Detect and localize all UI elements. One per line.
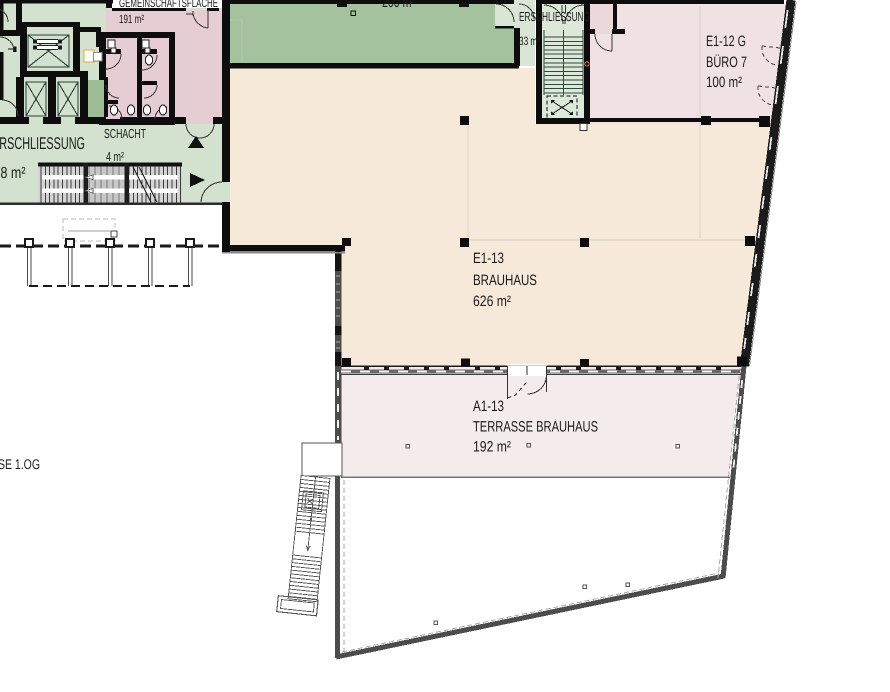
svg-text:A1-13: A1-13 <box>473 398 504 415</box>
svg-text:191 m²: 191 m² <box>119 12 144 26</box>
svg-text:SE 1.OG: SE 1.OG <box>0 456 40 472</box>
svg-text:GEMEINSCHAFTSFLÄCHE: GEMEINSCHAFTSFLÄCHE <box>119 0 218 10</box>
svg-text:626 m²: 626 m² <box>473 293 511 310</box>
svg-text:192 m²: 192 m² <box>473 439 511 456</box>
svg-text:8 m²: 8 m² <box>1 165 27 182</box>
svg-text:ERSCHLIESSUNG: ERSCHLIESSUNG <box>519 9 590 24</box>
svg-text:E1-12 G: E1-12 G <box>706 33 746 50</box>
svg-text:TERRASSE BRAUHAUS: TERRASSE BRAUHAUS <box>473 419 598 436</box>
svg-text:33 m²: 33 m² <box>519 34 540 48</box>
svg-text:BÜRO 7: BÜRO 7 <box>706 54 747 71</box>
svg-text:200 m²: 200 m² <box>382 0 415 11</box>
svg-text:100 m²: 100 m² <box>706 74 742 91</box>
svg-text:ERSCHLIESSUNG: ERSCHLIESSUNG <box>0 134 85 153</box>
svg-text:SCHACHT: SCHACHT <box>104 126 146 141</box>
svg-text:BRAUHAUS: BRAUHAUS <box>473 272 537 289</box>
svg-text:4 m²: 4 m² <box>106 149 124 164</box>
svg-text:E1-13: E1-13 <box>473 250 504 267</box>
